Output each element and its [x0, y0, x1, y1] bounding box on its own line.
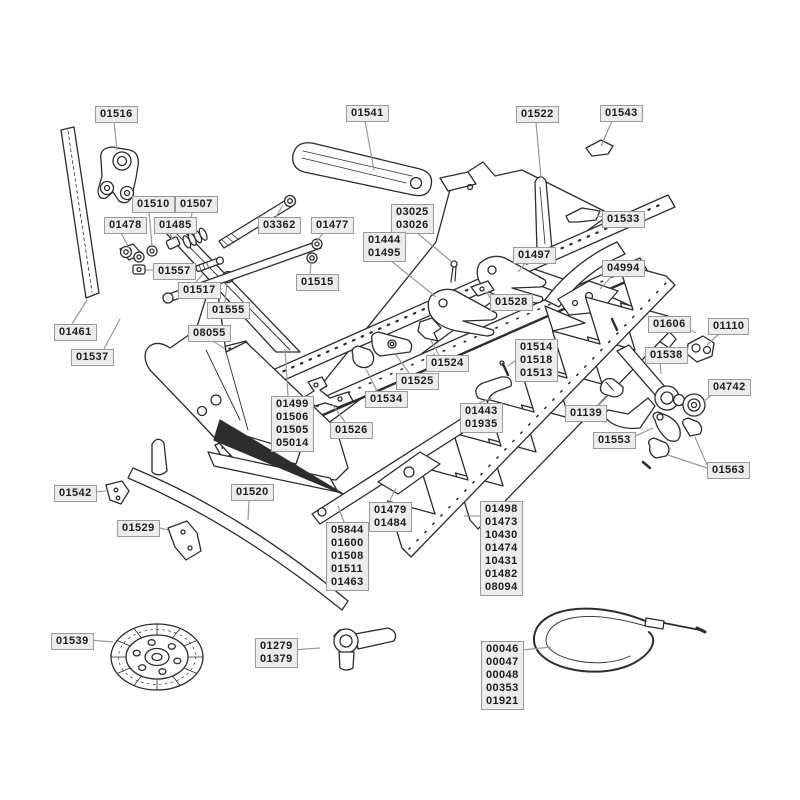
part-label-03362: 03362 [258, 217, 301, 234]
part-label-01522: 01522 [516, 106, 559, 123]
part-label-01510: 01510 [132, 196, 175, 213]
part-label-05844: 05844 01600 01508 01511 01463 [326, 522, 369, 591]
part-label-01529: 01529 [117, 520, 160, 537]
part-label-01444: 01444 01495 [363, 232, 406, 262]
part-label-01557: 01557 [153, 263, 196, 280]
part-label-00046: 00046 00047 00048 00353 01921 [481, 641, 524, 710]
part-label-04994: 04994 [602, 260, 645, 277]
part-label-08055: 08055 [188, 325, 231, 342]
part-label-01515: 01515 [296, 274, 339, 291]
part-label-01525: 01525 [396, 373, 439, 390]
part-label-01555: 01555 [207, 302, 250, 319]
part-label-01279: 01279 01379 [255, 638, 298, 668]
part-label-01541: 01541 [346, 105, 389, 122]
part-label-01528: 01528 [490, 294, 533, 311]
part-label-01497: 01497 [513, 247, 556, 264]
parts-diagram: 0151601541015220154301510015070147801485… [0, 0, 800, 800]
part-label-01498: 01498 01473 10430 01474 10431 01482 0809… [480, 501, 523, 596]
part-label-01479: 01479 01484 [369, 502, 412, 532]
part-label-03025: 03025 03026 [391, 204, 434, 234]
part-label-01139: 01139 [565, 405, 607, 422]
part-label-01478: 01478 [104, 217, 147, 234]
part-label-01538: 01538 [645, 347, 688, 364]
part-label-01524: 01524 [426, 355, 469, 372]
part-label-01526: 01526 [330, 422, 373, 439]
part-label-01534: 01534 [365, 391, 408, 408]
part-label-01606: 01606 [648, 316, 691, 333]
part-label-01507: 01507 [175, 196, 218, 213]
part-label-01514: 01514 01518 01513 [515, 339, 558, 382]
part-label-01553: 01553 [593, 432, 636, 449]
part-label-01539: 01539 [51, 633, 94, 650]
part-label-01517: 01517 [178, 282, 221, 299]
part-label-01477: 01477 [311, 217, 354, 234]
part-label-01485: 01485 [154, 217, 197, 234]
part-label-01520: 01520 [231, 484, 274, 501]
part-label-04742: 04742 [708, 379, 751, 396]
part-label-01533: 01533 [602, 211, 645, 228]
part-label-01516: 01516 [95, 106, 138, 123]
part-label-01110: 01110 [708, 318, 749, 335]
part-label-01537: 01537 [71, 349, 114, 366]
part-label-01499: 01499 01506 01505 05014 [271, 396, 314, 452]
part-label-01543: 01543 [600, 105, 643, 122]
part-label-01461: 01461 [54, 324, 97, 341]
part-label-01542: 01542 [54, 485, 97, 502]
part-label-01563: 01563 [707, 462, 750, 479]
part-labels: 0151601541015220154301510015070147801485… [0, 0, 800, 800]
part-label-01443: 01443 01935 [460, 403, 503, 433]
